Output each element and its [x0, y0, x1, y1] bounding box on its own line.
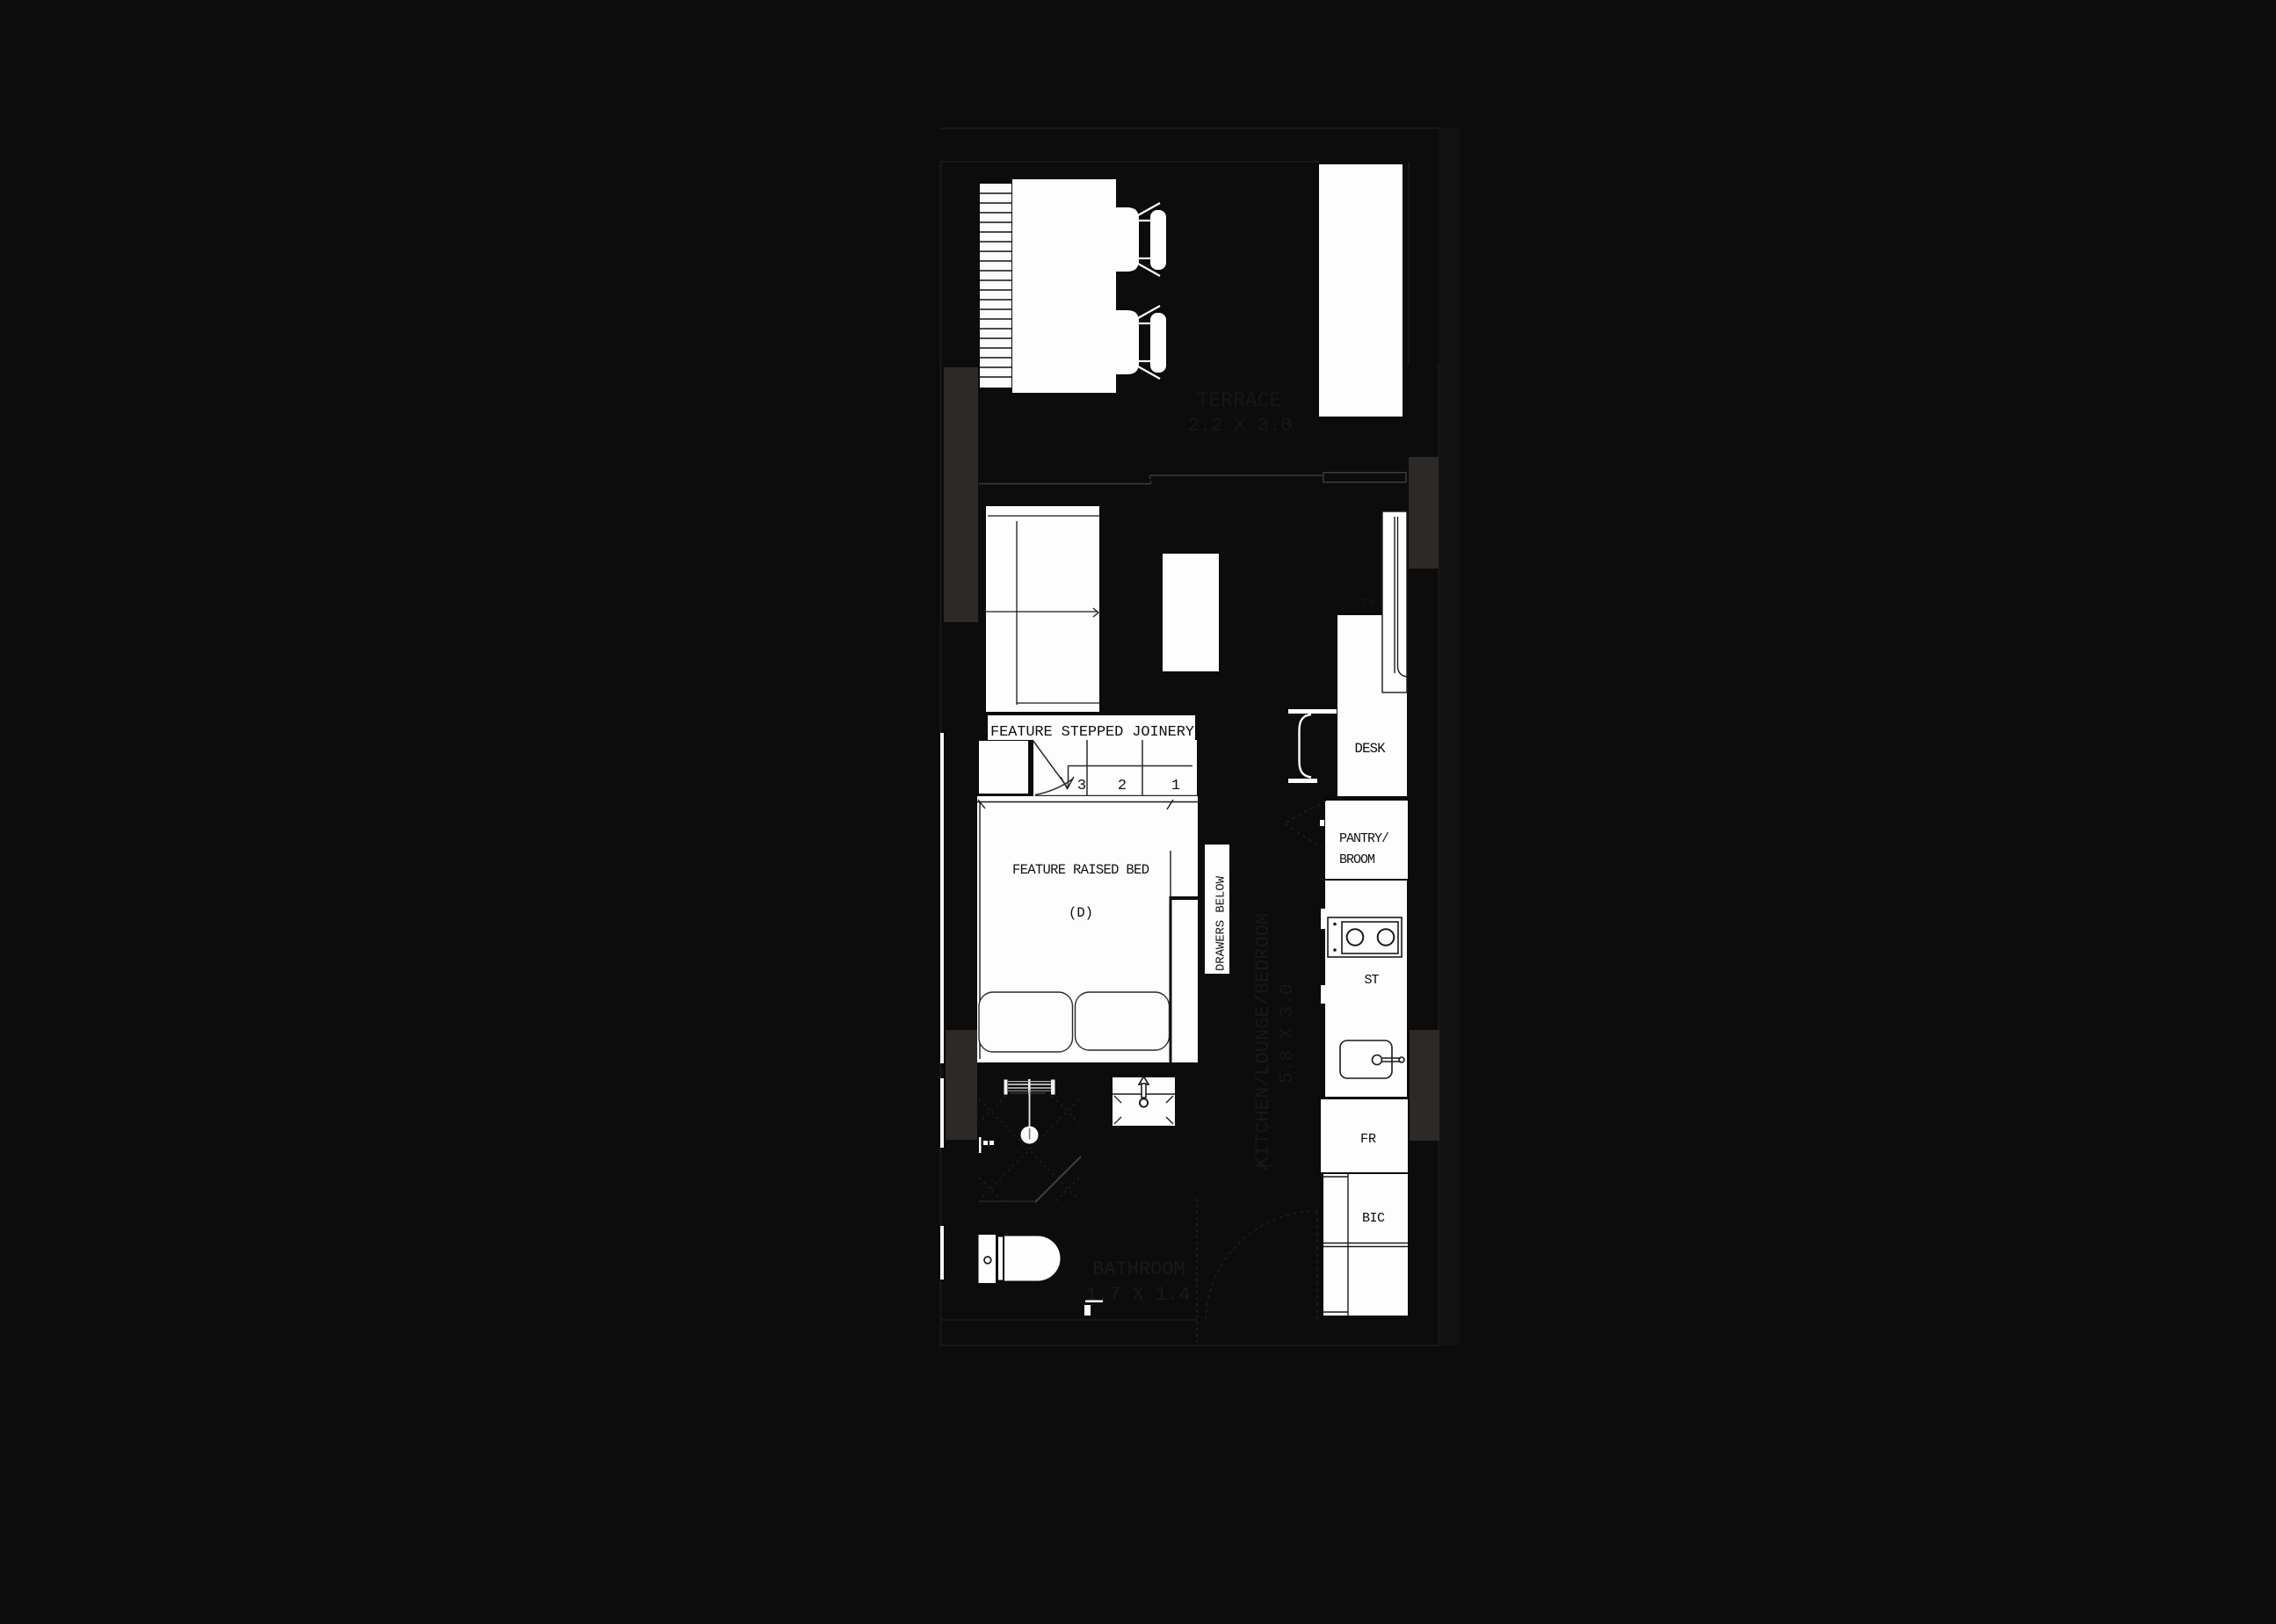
svg-text:DESK: DESK	[1355, 741, 1387, 757]
svg-text:DRAWERS BELOW: DRAWERS BELOW	[1214, 875, 1229, 971]
svg-text:TERRACE: TERRACE	[1197, 389, 1282, 412]
svg-text:KITCHEN/LOUNGE/BEDROOM: KITCHEN/LOUNGE/BEDROOM	[1252, 913, 1274, 1168]
svg-text:FR: FR	[1360, 1132, 1376, 1147]
svg-text:2.2 X 3.0: 2.2 X 3.0	[1188, 415, 1293, 437]
svg-text:3: 3	[1077, 778, 1086, 794]
svg-text:FEATURE RAISED BED: FEATURE RAISED BED	[1012, 862, 1149, 878]
svg-text:FEATURE STEPPED JOINERY: FEATURE STEPPED JOINERY	[990, 724, 1194, 741]
svg-text:ST: ST	[1365, 973, 1380, 988]
svg-text:1.7 X 1.4: 1.7 X 1.4	[1086, 1284, 1191, 1306]
svg-text:(D): (D)	[1069, 905, 1093, 921]
svg-text:BIC: BIC	[1362, 1211, 1385, 1226]
svg-text:5.8 X 3.0: 5.8 X 3.0	[1278, 983, 1298, 1083]
svg-text:2: 2	[1118, 778, 1127, 794]
svg-text:BATHROOM: BATHROOM	[1092, 1258, 1185, 1280]
svg-text:BROOM: BROOM	[1339, 852, 1375, 867]
svg-text:1: 1	[1171, 778, 1180, 794]
svg-text:PANTRY/: PANTRY/	[1339, 831, 1389, 846]
svg-text:TV: TV	[1360, 597, 1375, 611]
